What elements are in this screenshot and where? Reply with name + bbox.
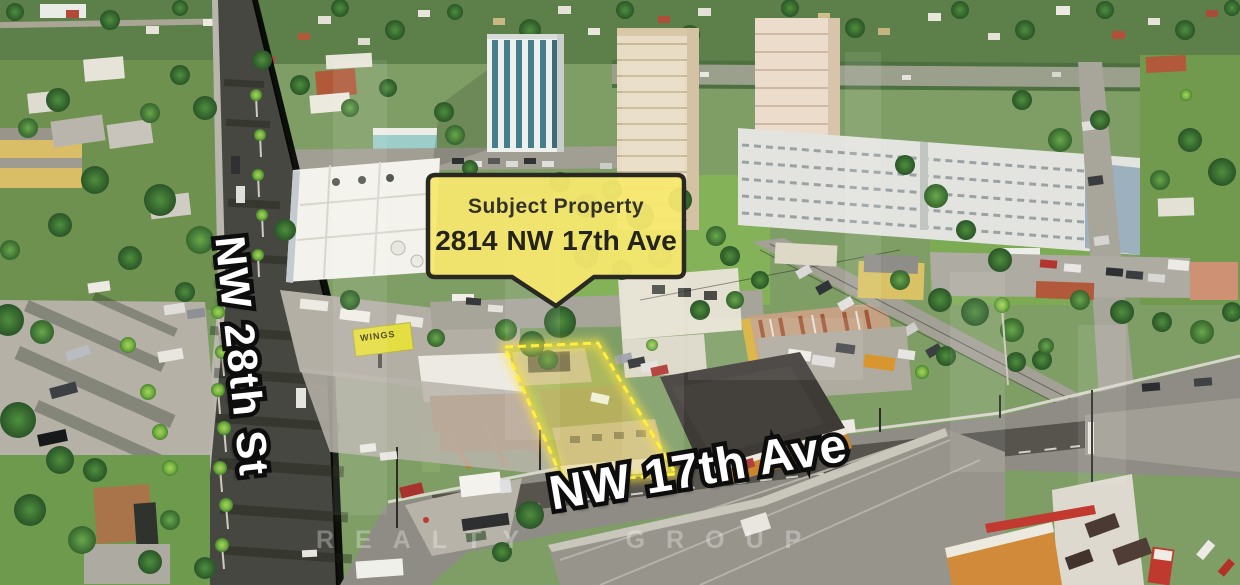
subject-property-callout-bubble	[0, 0, 1240, 585]
aerial-photo: REALTY GROUP WINGS NW 28th St NW 28th St…	[0, 0, 1240, 585]
callout-title: Subject Property	[468, 195, 644, 219]
callout-address-street: 17th Ave	[562, 225, 677, 257]
subject-property-callout: Subject Property 2814 NW 17th Ave	[428, 178, 684, 274]
callout-address: 2814 NW 17th Ave	[435, 225, 677, 257]
callout-address-number: 2814	[435, 225, 497, 257]
callout-address-prefix: NW	[507, 225, 554, 257]
